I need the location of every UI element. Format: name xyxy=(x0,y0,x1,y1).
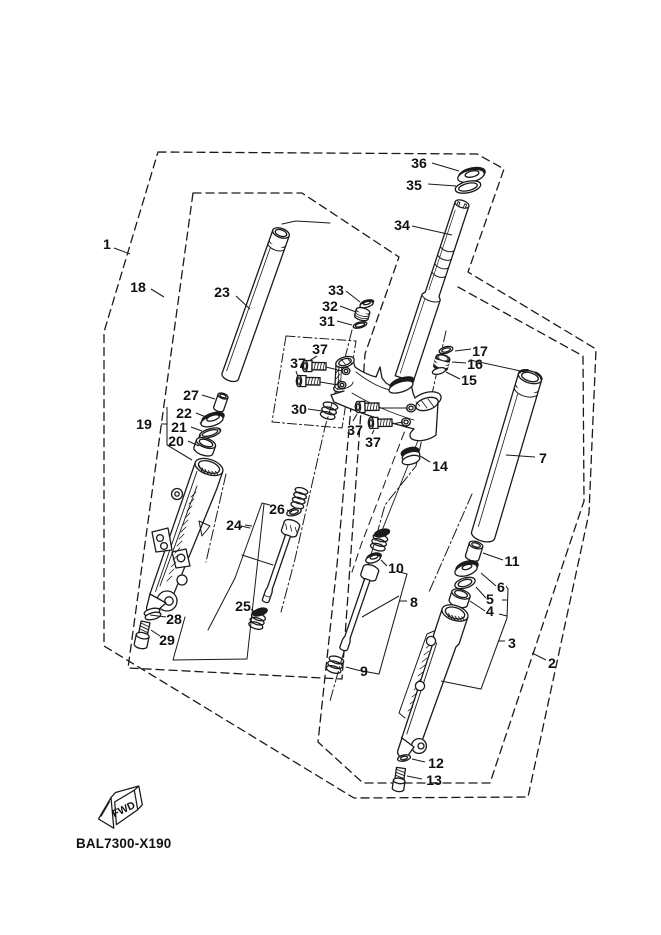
svg-text:29: 29 xyxy=(159,633,175,649)
svg-text:13: 13 xyxy=(426,773,442,789)
svg-text:26: 26 xyxy=(269,502,285,518)
svg-text:37: 37 xyxy=(312,342,328,358)
svg-text:9: 9 xyxy=(360,664,368,680)
svg-text:8: 8 xyxy=(410,595,418,611)
svg-text:37: 37 xyxy=(290,356,306,372)
svg-text:36: 36 xyxy=(411,156,427,172)
svg-text:37: 37 xyxy=(365,435,381,451)
svg-text:25: 25 xyxy=(235,599,251,615)
svg-text:31: 31 xyxy=(319,314,335,330)
svg-text:18: 18 xyxy=(130,280,146,296)
svg-text:3: 3 xyxy=(508,636,516,652)
svg-text:24: 24 xyxy=(226,518,242,534)
svg-text:7: 7 xyxy=(539,451,547,467)
svg-text:30: 30 xyxy=(291,402,307,418)
svg-text:34: 34 xyxy=(394,218,410,234)
svg-text:1: 1 xyxy=(103,237,111,253)
svg-text:33: 33 xyxy=(328,283,344,299)
svg-text:6: 6 xyxy=(497,580,505,596)
svg-text:27: 27 xyxy=(183,388,199,404)
svg-text:4: 4 xyxy=(486,604,494,620)
svg-text:32: 32 xyxy=(322,299,338,315)
svg-text:35: 35 xyxy=(406,178,422,194)
svg-text:10: 10 xyxy=(388,561,404,577)
svg-text:37: 37 xyxy=(347,423,363,439)
svg-text:15: 15 xyxy=(461,373,477,389)
svg-text:BAL7300-X190: BAL7300-X190 xyxy=(76,836,171,851)
svg-text:20: 20 xyxy=(168,434,184,450)
svg-text:23: 23 xyxy=(214,285,230,301)
svg-text:14: 14 xyxy=(432,459,448,475)
svg-text:28: 28 xyxy=(166,612,182,628)
svg-text:16: 16 xyxy=(467,357,483,373)
svg-text:11: 11 xyxy=(505,554,520,570)
svg-text:19: 19 xyxy=(136,417,152,433)
svg-text:12: 12 xyxy=(428,756,444,772)
svg-text:2: 2 xyxy=(548,656,556,672)
